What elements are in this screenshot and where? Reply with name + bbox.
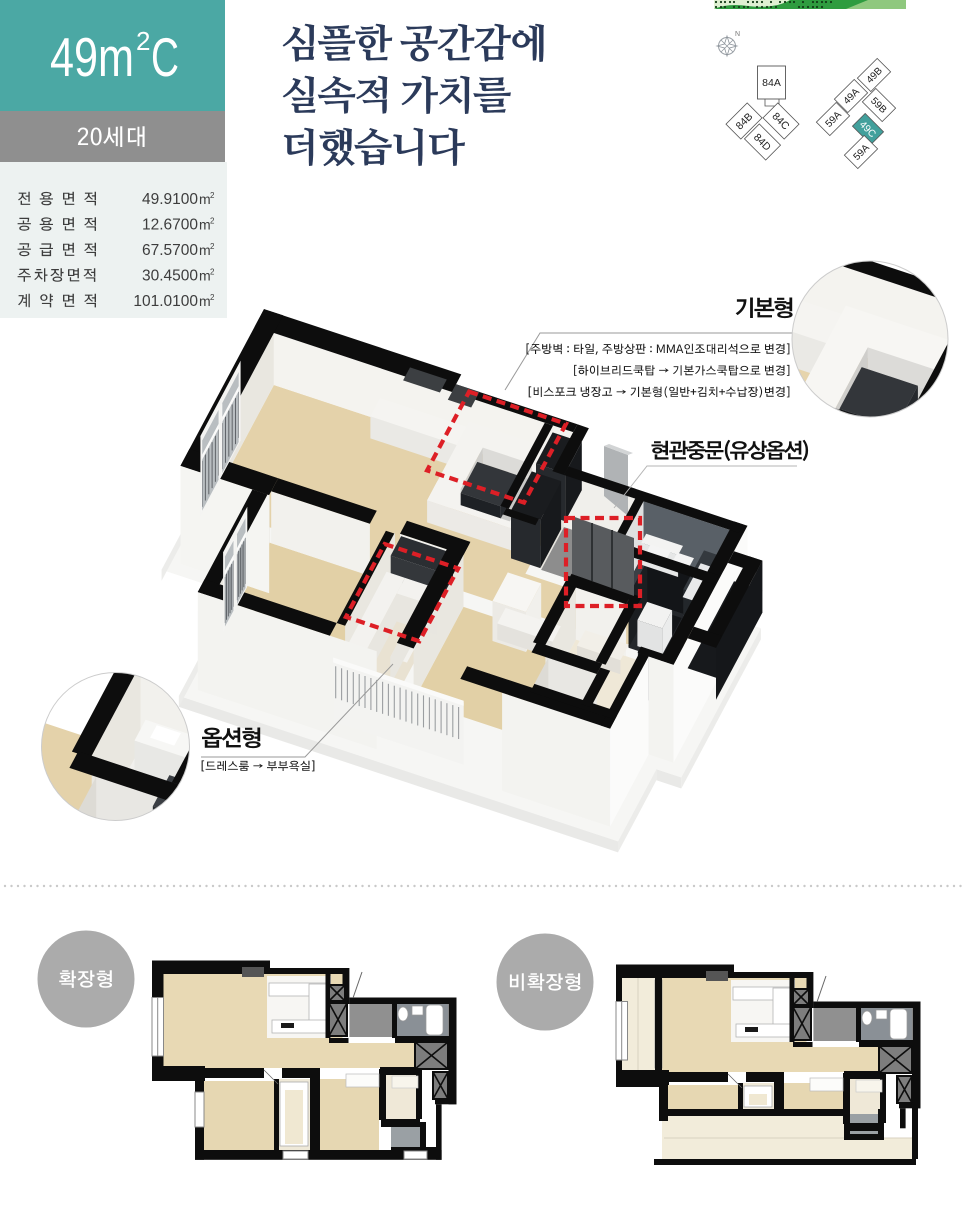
svg-text:2: 2 (210, 191, 215, 200)
svg-text:m: m (199, 268, 211, 284)
svg-text:m: m (199, 242, 211, 258)
svg-text:2: 2 (210, 293, 215, 302)
svg-text:m: m (199, 191, 211, 207)
svg-text:C: C (151, 26, 179, 88)
svg-text:2: 2 (210, 217, 215, 226)
svg-text:m: m (199, 217, 211, 233)
svg-text:49m: 49m (50, 26, 134, 88)
svg-text:m: m (199, 293, 211, 309)
svg-text:N: N (735, 31, 740, 38)
svg-text:49.9100: 49.9100 (142, 191, 198, 208)
svg-text:67.5700: 67.5700 (142, 242, 198, 259)
svg-text:2: 2 (210, 242, 215, 251)
svg-text:84A: 84A (762, 77, 781, 89)
svg-text:30.4500: 30.4500 (142, 268, 198, 285)
svg-text:101.0100: 101.0100 (133, 293, 198, 310)
svg-text:2: 2 (210, 268, 215, 277)
svg-text:12.6700: 12.6700 (142, 217, 198, 234)
svg-text:2: 2 (136, 26, 150, 56)
